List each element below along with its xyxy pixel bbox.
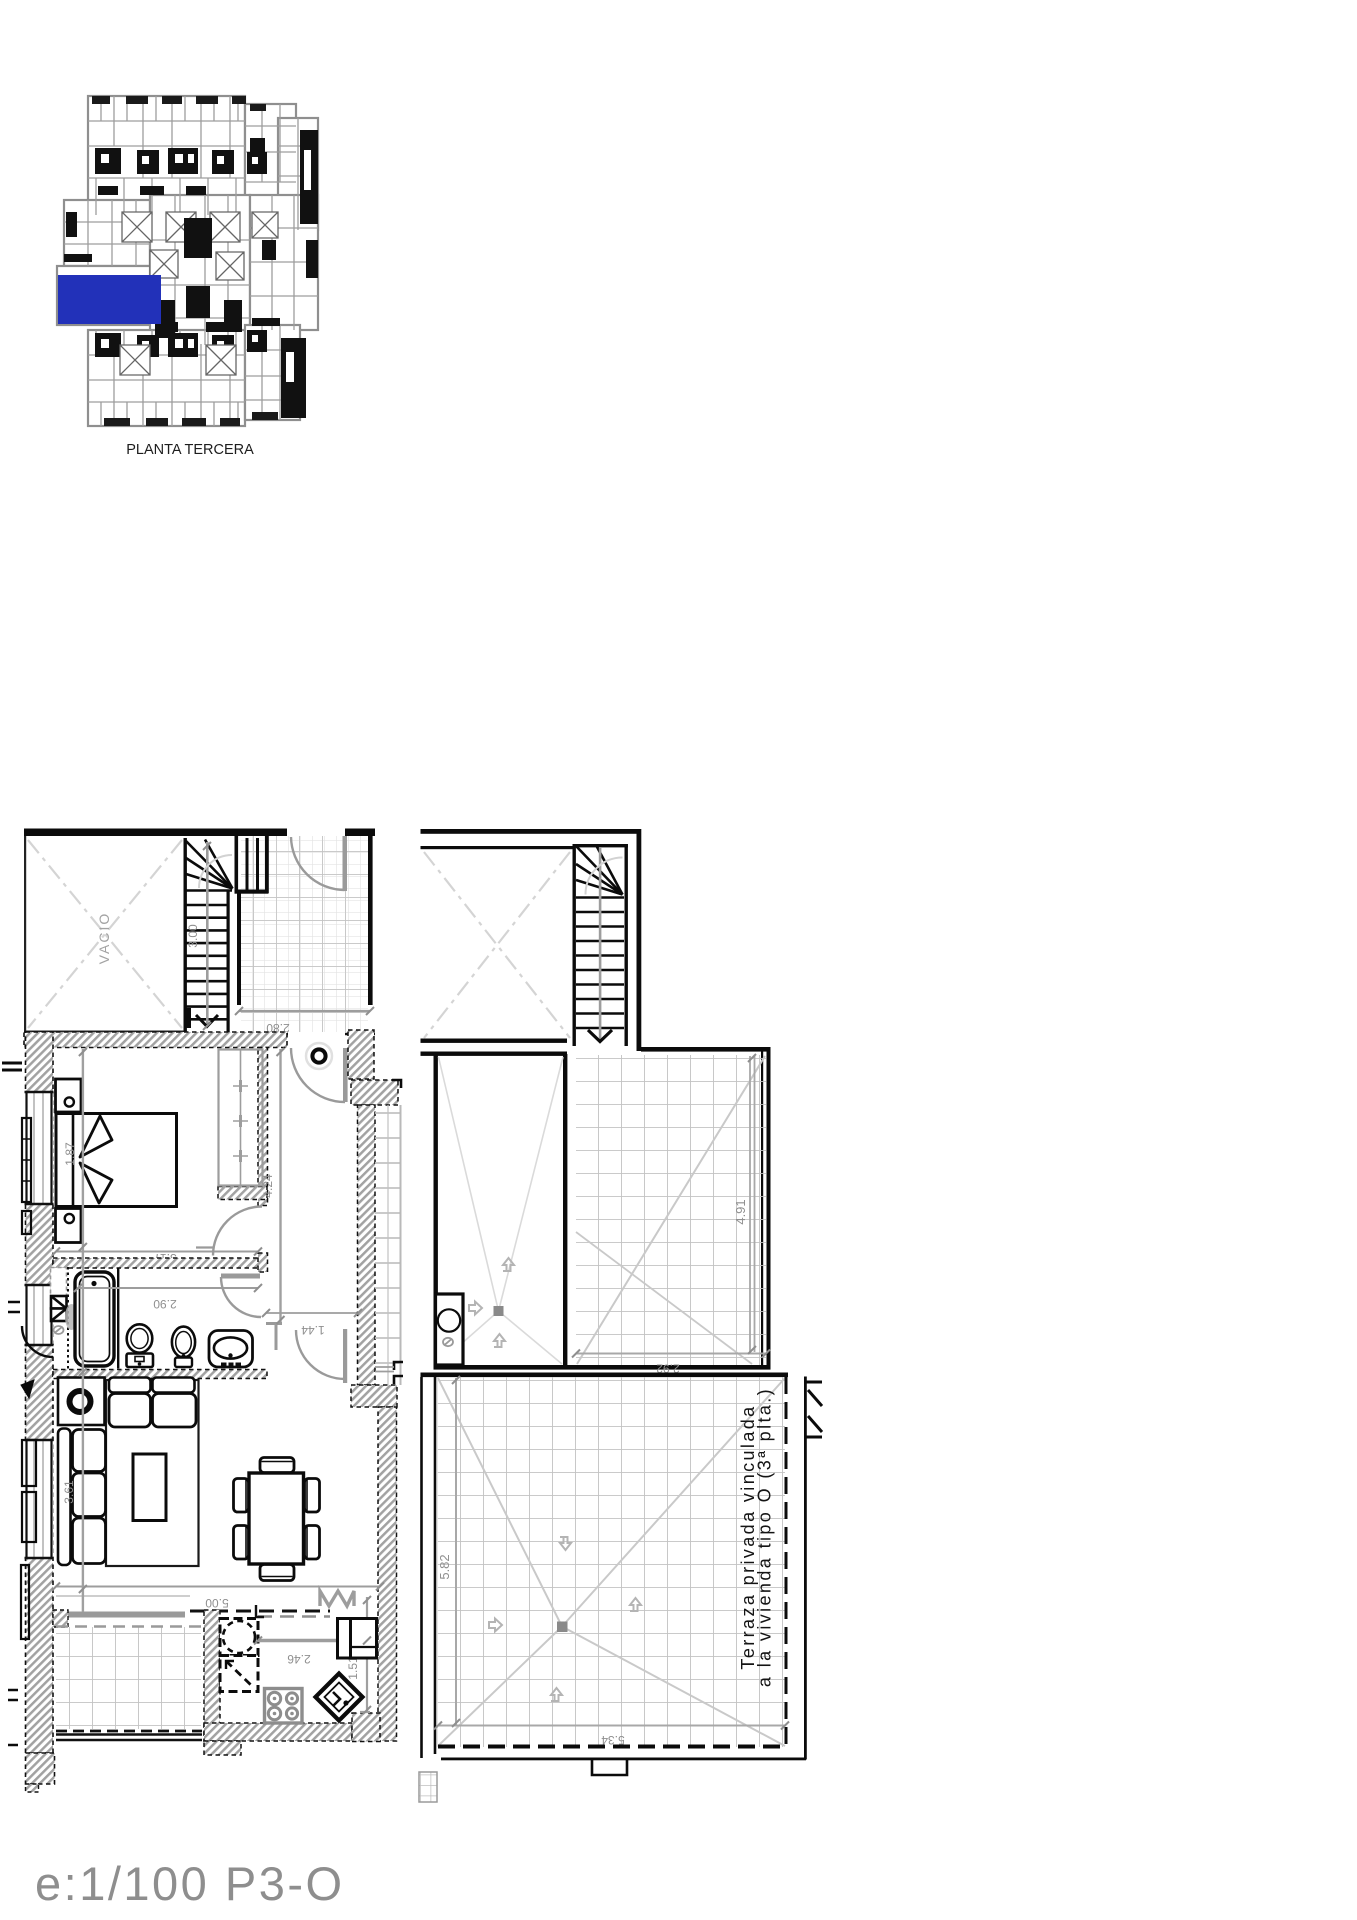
svg-text:1.87: 1.87: [63, 1142, 77, 1166]
svg-text:4.24: 4.24: [261, 1174, 275, 1198]
svg-text:1.44: 1.44: [301, 1323, 325, 1337]
svg-text:1.51: 1.51: [346, 1656, 360, 1680]
svg-text:2.90: 2.90: [153, 1297, 177, 1311]
svg-text:e:1/100 P3-O: e:1/100 P3-O: [35, 1857, 345, 1910]
svg-text:2.46: 2.46: [287, 1652, 311, 1666]
svg-text:a la vivienda tipo O (3ª plta.: a la vivienda tipo O (3ª plta.): [755, 1387, 775, 1687]
svg-text:4.91: 4.91: [733, 1199, 748, 1224]
svg-text:3.00: 3.00: [186, 924, 200, 948]
svg-text:3.61: 3.61: [62, 1480, 76, 1504]
svg-text:PLANTA TERCERA: PLANTA TERCERA: [126, 442, 254, 458]
svg-text:VACIO: VACIO: [96, 912, 112, 965]
svg-text:5.82: 5.82: [437, 1554, 452, 1579]
svg-text:5.00: 5.00: [205, 1596, 229, 1610]
